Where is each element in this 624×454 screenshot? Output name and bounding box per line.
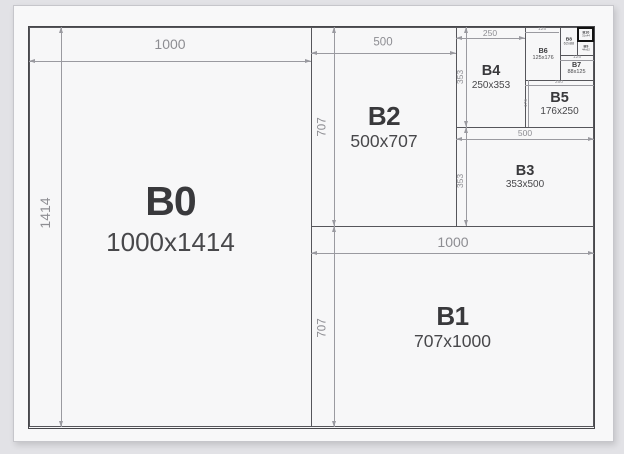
paper-size-b6: 125x176: [532, 55, 553, 61]
dimension-line: [525, 32, 559, 33]
paper-label-b1: B1: [436, 303, 468, 329]
dimension-label: 353: [456, 174, 465, 188]
dimension-label: 500: [518, 129, 532, 138]
dimension-label: 1414: [38, 197, 52, 228]
dimension-line: [525, 85, 594, 86]
paper-size-b0: 1000x1414: [106, 229, 235, 255]
paper-label-b5: B5: [550, 91, 569, 106]
paper-box-b8: B862x88: [560, 27, 579, 56]
dimension-line: [29, 61, 311, 62]
paper-label-stack: B1031x44: [582, 31, 590, 38]
paper-box-b10: B1031x44: [577, 27, 594, 42]
paper-size-b7: 88x125: [568, 69, 586, 75]
dimension-line: [61, 27, 62, 427]
paper-size-b10: 31x44: [582, 35, 590, 38]
dimension-label: 1000: [154, 37, 185, 51]
dimension-label: 1000: [437, 235, 468, 249]
dimension-label: 353: [456, 70, 465, 84]
dimension-label: 125: [573, 55, 581, 60]
paper-size-b4: 250x353: [472, 81, 510, 91]
paper-label-b4: B4: [482, 64, 501, 79]
dimension-line: [466, 27, 467, 127]
paper-box-b2: B2500x707: [311, 27, 457, 227]
paper-label-b3: B3: [516, 164, 535, 179]
paper-label-b6: B6: [538, 47, 547, 54]
paper-label-b0: B0: [145, 181, 195, 222]
paper-label-b7: B7: [572, 61, 581, 68]
paper-label-stack: B5176x250: [540, 91, 578, 118]
paper-label-b2: B2: [368, 103, 400, 129]
paper-label-stack: B4250x353: [472, 64, 510, 91]
paper-size-b8: 62x88: [564, 42, 574, 46]
dimension-line: [334, 27, 335, 226]
screenshot-root: { "colors": { "background": "#e2e2e6", "…: [0, 0, 624, 454]
paper-size-b1: 707x1000: [414, 333, 491, 351]
dimension-line: [456, 139, 594, 140]
dimension-label: 707: [317, 117, 329, 136]
paper-size-b2: 500x707: [350, 133, 417, 151]
paper-label-stack: B944x62: [582, 45, 590, 52]
paper-label-stack: B3353x500: [506, 164, 544, 191]
dimension-line: [466, 127, 467, 226]
paper-size-b9: 44x62: [582, 49, 590, 52]
paper-sheet: B01000x1414B2500x707B1707x1000B4250x353B…: [13, 5, 614, 442]
dimension-label: 707: [317, 318, 329, 337]
dimension-line: [311, 53, 456, 54]
dimension-label: 250: [555, 80, 563, 85]
b-series-diagram-frame: B01000x1414B2500x707B1707x1000B4250x353B…: [28, 26, 595, 429]
paper-label-stack: B788x125: [568, 61, 586, 75]
paper-label-stack: B2500x707: [350, 103, 417, 151]
paper-label-stack: B862x88: [564, 37, 574, 46]
paper-box-b1: B1707x1000: [311, 226, 594, 427]
paper-label-stack: B01000x1414: [106, 181, 235, 255]
dimension-label: 125: [538, 27, 546, 32]
paper-label-stack: B1707x1000: [414, 303, 491, 351]
dimension-label: 500: [373, 37, 392, 49]
paper-box-b0: B01000x1414: [29, 27, 312, 427]
paper-size-b3: 353x500: [506, 180, 544, 190]
dimension-label: 176: [523, 99, 528, 107]
dimension-line: [311, 253, 594, 254]
dimension-line: [560, 60, 594, 61]
paper-box-b6: B6125x176: [525, 27, 561, 81]
dimension-label: 250: [483, 29, 497, 38]
paper-box-b5: B5176x250: [525, 80, 594, 128]
paper-size-b5: 176x250: [540, 107, 578, 117]
paper-label-stack: B6125x176: [532, 47, 553, 61]
paper-box-b3: B3353x500: [456, 127, 594, 227]
dimension-line: [334, 226, 335, 427]
